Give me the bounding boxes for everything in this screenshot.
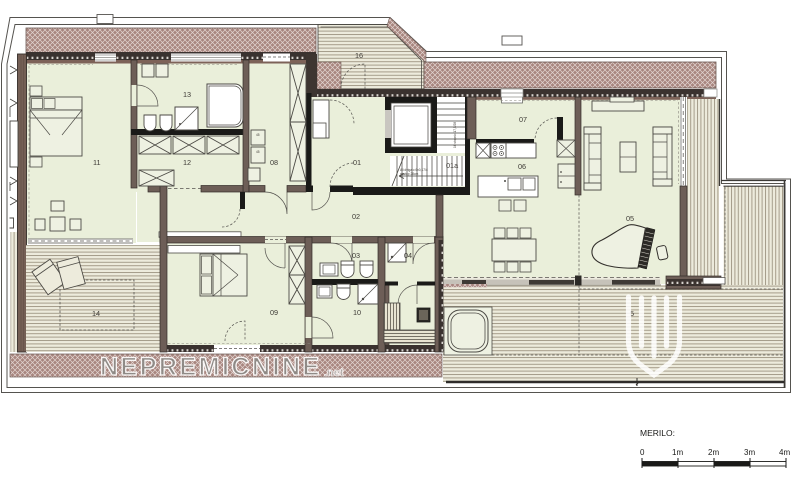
svg-text:1m: 1m [672,448,683,457]
svg-text:45: 45 [256,133,260,137]
svg-text:02: 02 [352,212,360,221]
svg-text:NEPREMICNINE: NEPREMICNINE [100,353,322,381]
svg-text:14: 14 [92,309,100,318]
svg-text:13: 13 [183,90,191,99]
svg-text:16 stopnic 17,5/28: 16 stopnic 17,5/28 [453,122,457,148]
svg-text:12: 12 [183,158,191,167]
svg-text:07: 07 [519,115,527,124]
svg-text:2m: 2m [708,448,719,457]
svg-text:04: 04 [404,251,412,260]
svg-text:05: 05 [626,214,634,223]
svg-text:03: 03 [352,251,360,260]
svg-text:09: 09 [270,308,278,317]
svg-text:08: 08 [270,158,278,167]
svg-text:10: 10 [353,308,361,317]
svg-text:01: 01 [353,158,361,167]
svg-text:3m: 3m [744,448,755,457]
svg-text:MERILO:: MERILO: [640,428,675,438]
svg-text:.net: .net [324,367,344,379]
svg-text:06: 06 [518,162,526,171]
svg-text:01a: 01a [446,161,459,170]
svg-text:nastop 28cm: nastop 28cm [400,172,419,176]
svg-text:4m: 4m [779,448,790,457]
svg-text:0: 0 [640,448,645,457]
svg-text:16: 16 [355,51,363,60]
svg-text:45: 45 [256,150,260,154]
svg-text:11: 11 [93,158,101,167]
